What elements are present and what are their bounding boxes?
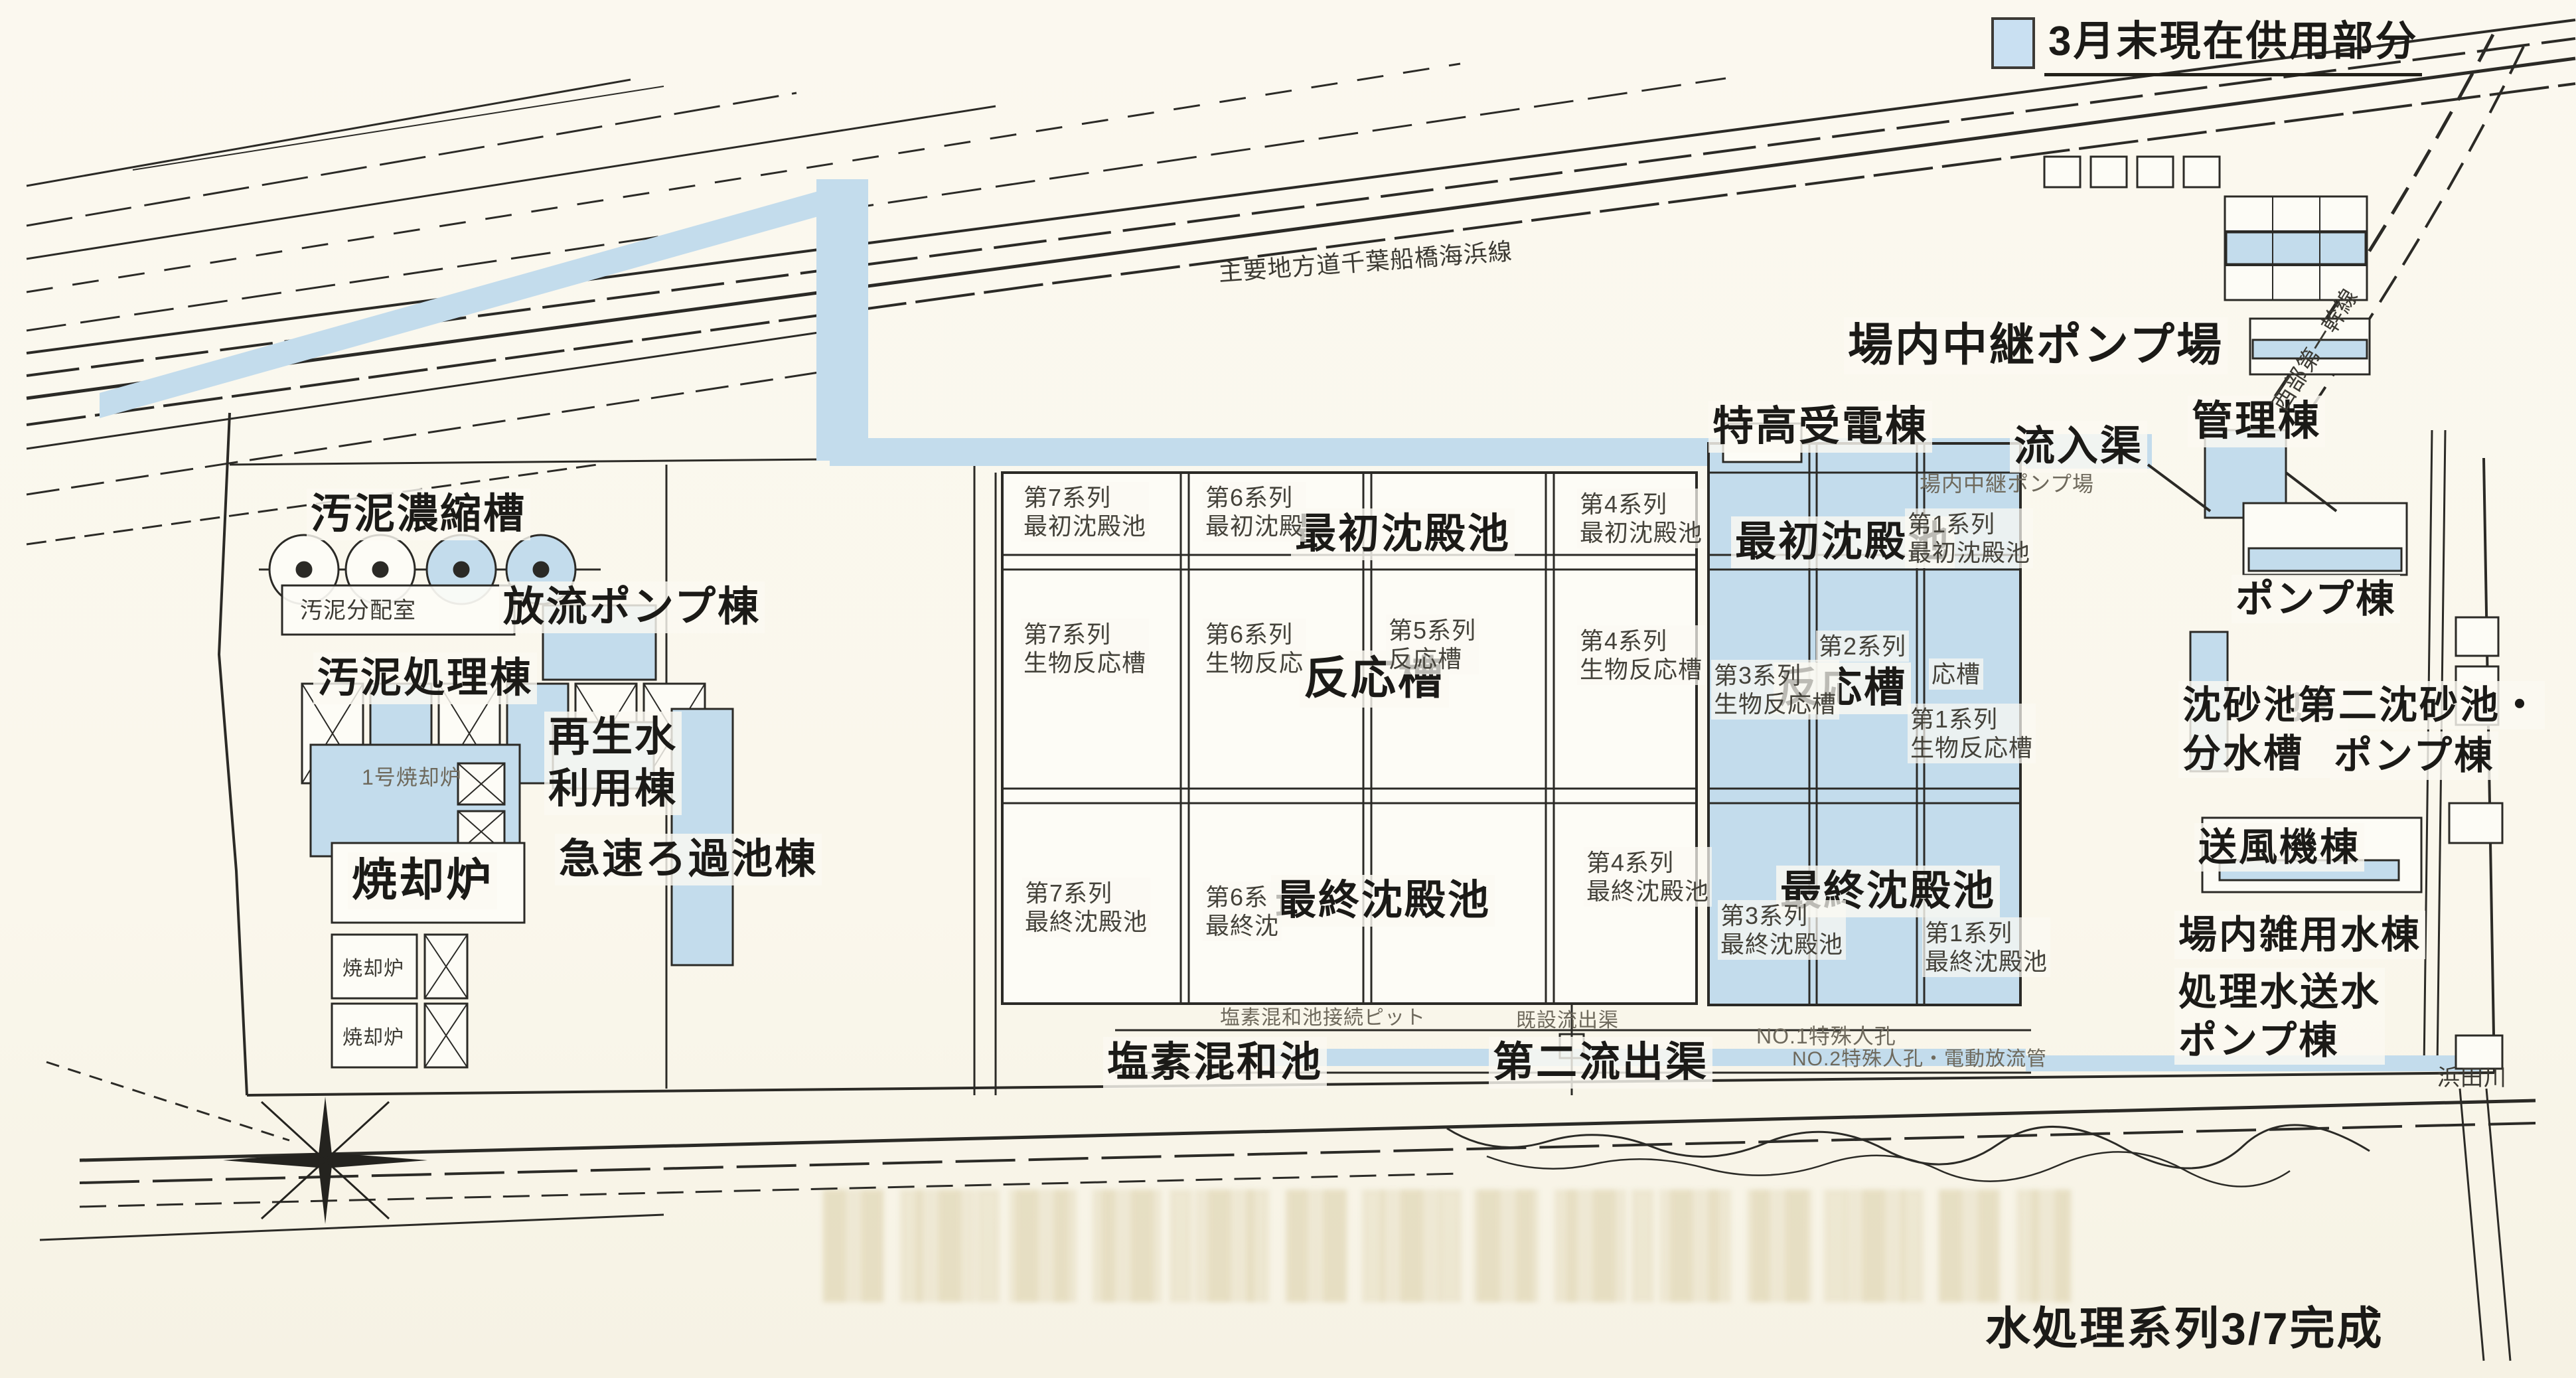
label-reclaimed-water: 再生水 利用棟 xyxy=(544,712,682,815)
cell-s1-reactor: 第1系列 生物反応槽 xyxy=(1908,704,2036,763)
label-misc-water-building: 場内雑用水棟 xyxy=(2174,911,2425,959)
label-inflow-channel: 流入渠 xyxy=(2010,421,2147,473)
cell-s7-final: 第7系列 最終沈殿池 xyxy=(1022,878,1150,937)
label-second-grit-pump: ポンプ棟 xyxy=(2330,731,2498,780)
label-manhole-no2: NO.2特殊人孔・電動放流管 xyxy=(1792,1042,2047,1071)
label-pump-building: ポンプ棟 xyxy=(2232,575,2400,623)
cell-s6-primary: 第6系列 最初沈殿 xyxy=(1203,482,1306,542)
label-admin-building: 管理棟 xyxy=(2188,396,2325,447)
label-sludge-distribution: 汚泥分配室 xyxy=(300,592,416,625)
cell-s2-reactor: 第2系列 xyxy=(1816,631,1909,662)
cell-s7-reactor: 第7系列 生物反応槽 xyxy=(1021,619,1149,678)
label-incinerator-small-2: 焼却炉 xyxy=(342,1021,404,1050)
label-primary-sed-west: 最初沈殿池 xyxy=(1291,508,1515,560)
cell-s6-final: 第6系 最終沈 xyxy=(1203,881,1282,941)
label-second-grit: 第二沈砂池・ xyxy=(2294,681,2545,729)
legend-label: 3月末現在供用部分 xyxy=(2044,16,2422,76)
label-onsite-relay-pump: 場内中継ポンプ場 xyxy=(1844,317,2228,374)
legend-swatch xyxy=(1991,17,2035,69)
map-caption: 水処理系列3/7完成 xyxy=(1981,1301,2388,1358)
label-incinerator: 焼却炉 xyxy=(348,852,497,909)
label-relay-pump-ghost: 場内中継ポンプ場 xyxy=(1920,467,2094,498)
label-rapid-filter: 急速ろ過池棟 xyxy=(555,834,822,885)
plant-map: 3月末現在供用部分 汚泥濃縮槽 放流ポンプ棟 汚泥処理棟 再生水 利用棟 急速ろ… xyxy=(0,0,2576,1378)
label-discharge-pump: 放流ポンプ棟 xyxy=(499,581,765,633)
cell-s3-reactor: 第3系列 生物反応槽 xyxy=(1711,660,1839,720)
cell-s3-final: 第3系列 最終沈殿池 xyxy=(1718,900,1846,960)
label-incinerator-no1: 1号焼却炉 xyxy=(362,761,462,791)
cell-s1-final: 第1系列 最終沈殿池 xyxy=(1922,917,2050,977)
cell-s5-reactor: 第5系列 反応槽 xyxy=(1386,615,1479,674)
label-treated-water-pump: 処理水送水 ポンプ棟 xyxy=(2174,968,2385,1065)
cell-s1-primary: 第1系列 最初沈殿池 xyxy=(1905,508,2033,568)
compass-star xyxy=(223,1097,427,1224)
cell-s4-primary: 第4系列 最初沈殿池 xyxy=(1577,489,1705,548)
label-final-sed-west: 最終沈殿池 xyxy=(1271,875,1495,927)
label-sludge-treatment: 汚泥処理棟 xyxy=(313,652,537,704)
cell-s2-reactor-fragment: 応槽 xyxy=(1929,658,1983,690)
label-chlorine-basin: 塩素混和池 xyxy=(1103,1037,1327,1089)
label-river: 浜田川 xyxy=(2437,1059,2507,1092)
label-second-outlet: 第二流出渠 xyxy=(1489,1037,1712,1089)
cell-s7-primary: 第7系列 最初沈殿池 xyxy=(1021,482,1149,542)
cell-s4-reactor: 第4系列 生物反応槽 xyxy=(1577,625,1705,685)
cell-s4-final: 第4系列 最終沈殿池 xyxy=(1584,847,1712,907)
label-blower-building: 送風機棟 xyxy=(2194,823,2364,872)
label-extra-high-voltage: 特高受電棟 xyxy=(1708,401,1932,453)
label-incinerator-small-1: 焼却炉 xyxy=(342,952,404,981)
label-chlorine-pit: 塩素混和池接続ピット xyxy=(1220,1001,1426,1030)
label-sludge-thickener: 汚泥濃縮槽 xyxy=(307,489,530,540)
cell-s6-reactor: 第6系列 生物反応 xyxy=(1203,619,1306,678)
label-existing-outlet: 既設流出渠 xyxy=(1516,1004,1619,1033)
